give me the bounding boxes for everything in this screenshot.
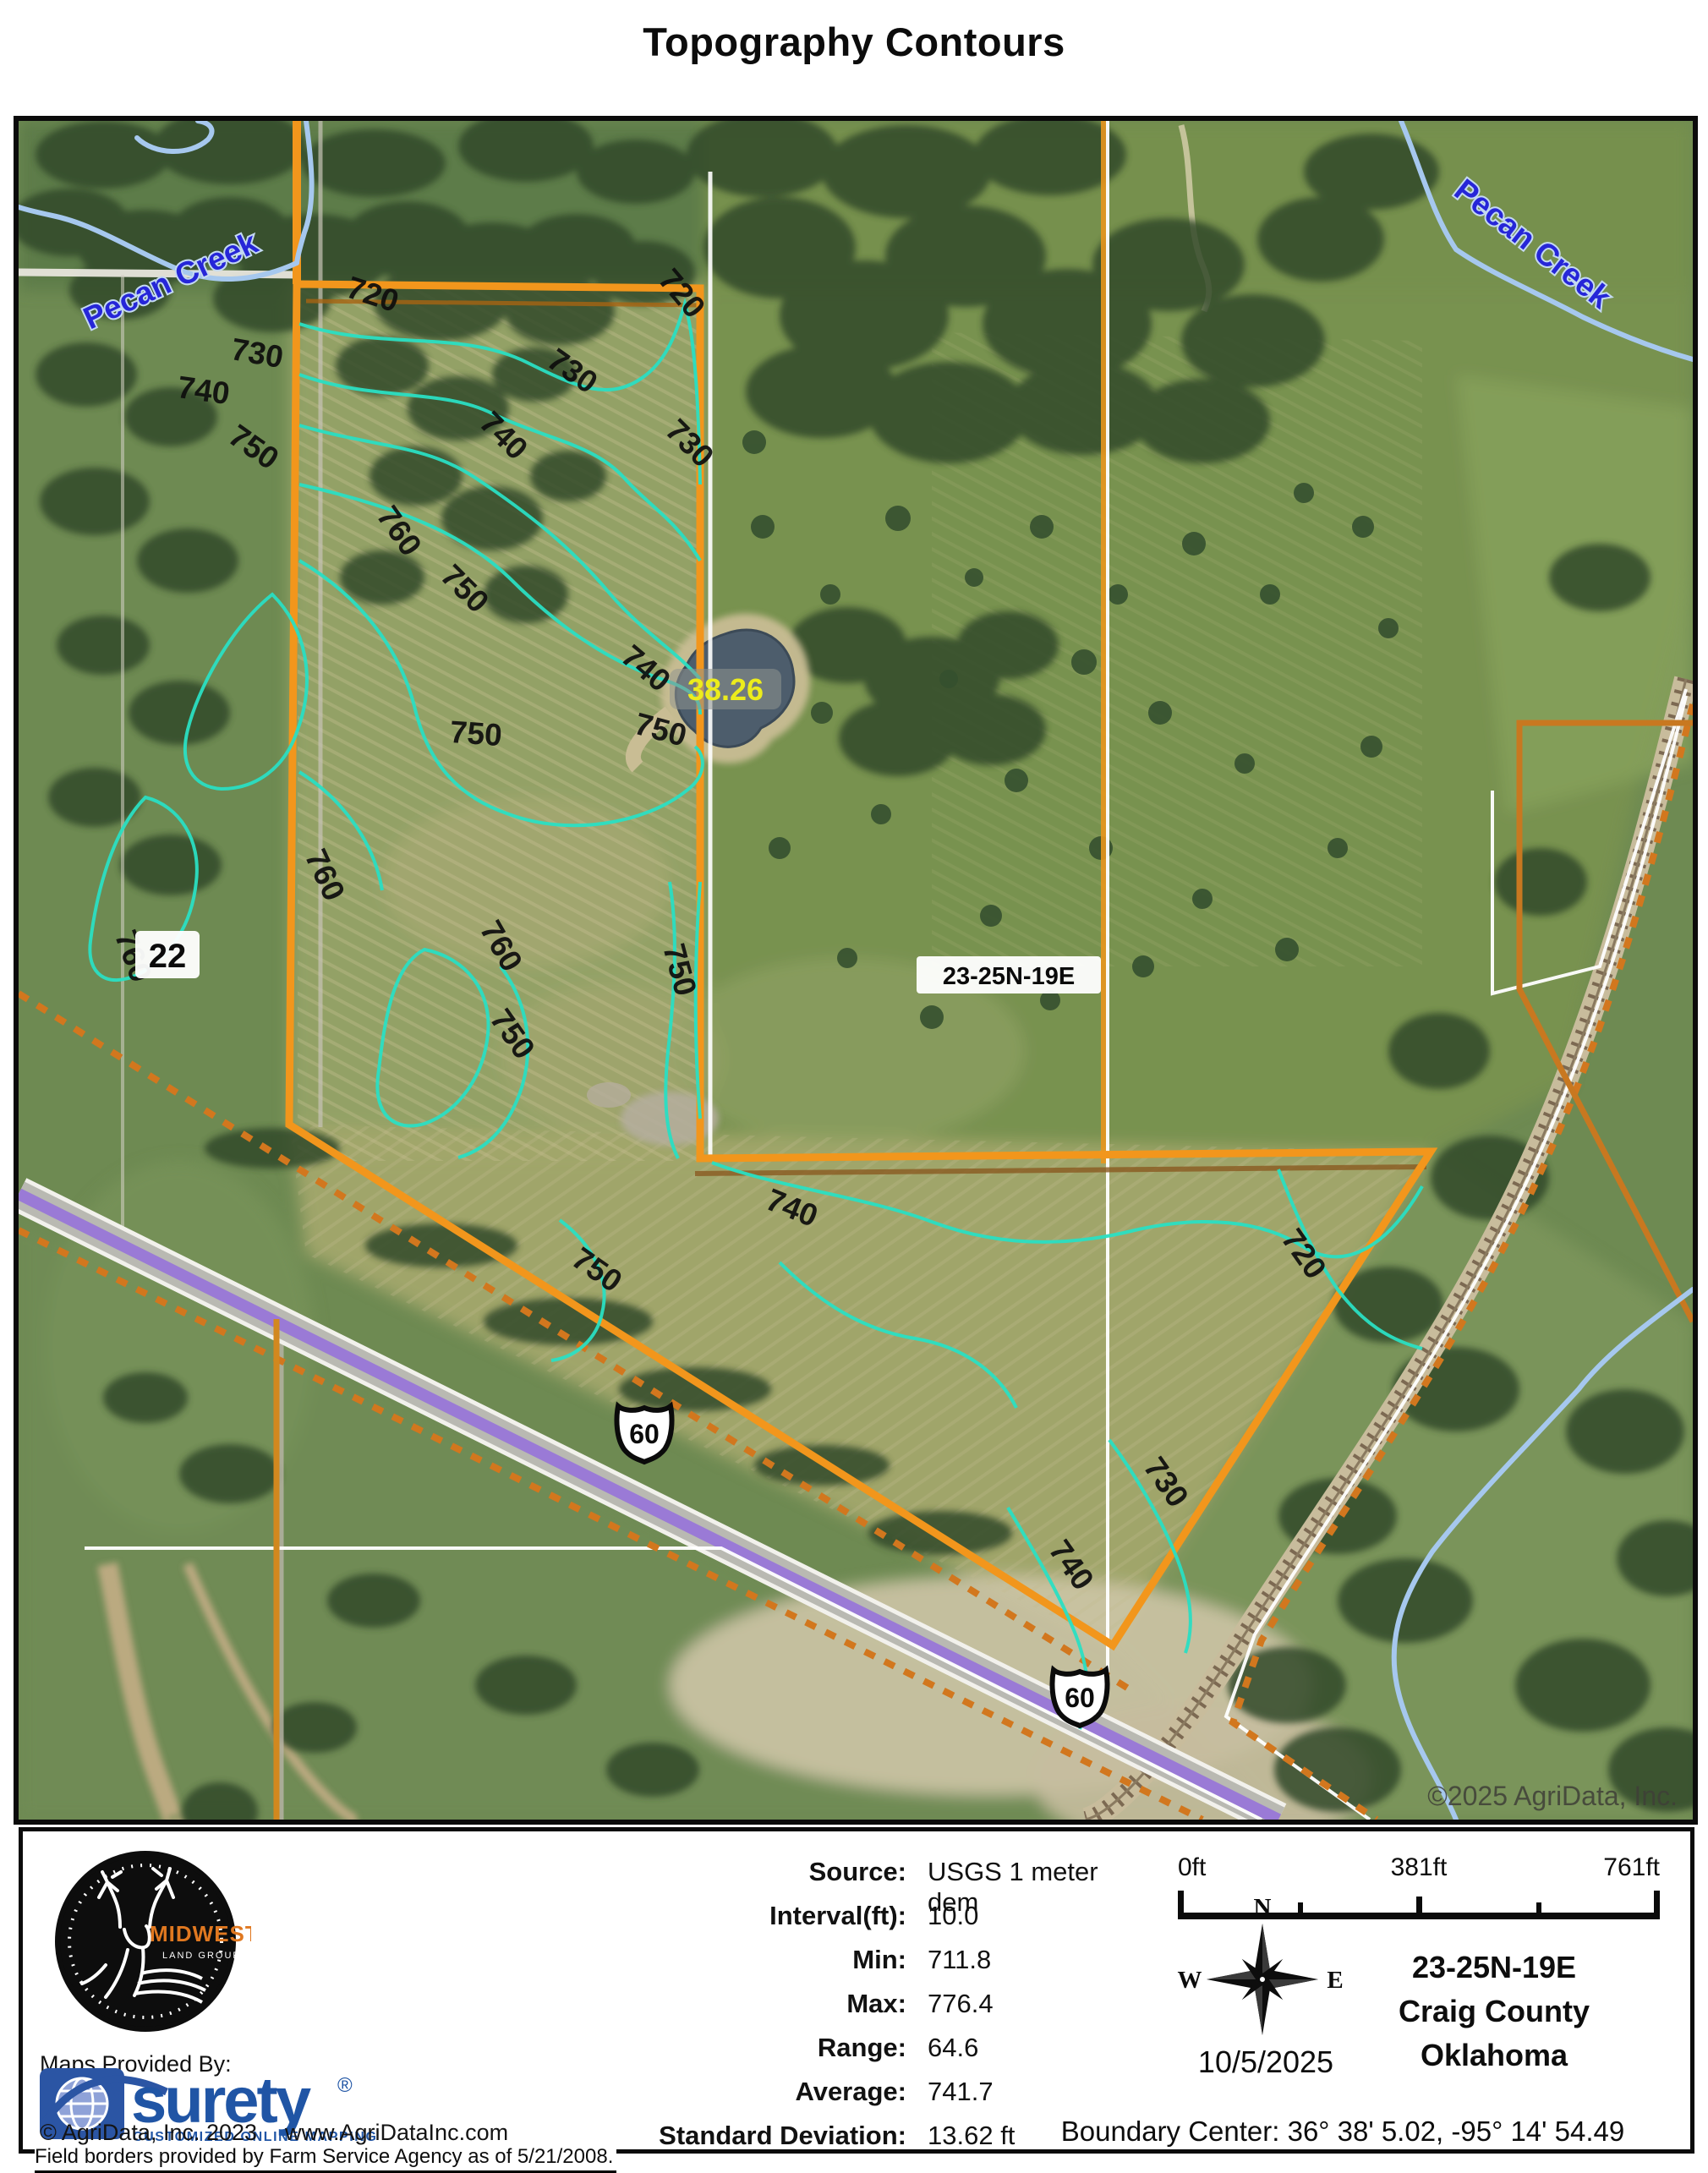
page-title: Topography Contours [0,19,1708,65]
section-number-badge: 22 [135,931,200,978]
stat-value: 10.0 [928,1901,978,1931]
stat-label: Max: [302,1989,906,2019]
logo-sub-text: LAND GROUP [162,1951,241,1961]
aerial-map-image: 720 720 730 730 730 740 740 750 760 750 … [19,121,1693,1820]
compass-n: N [1254,1894,1272,1921]
contour-label: 750 [449,714,503,753]
location-township: 23-25N-19E [1317,1950,1672,1985]
contour-label: 740 [175,369,232,411]
compass-w: W [1178,1967,1202,1994]
map-canvas: 720 720 730 730 730 740 740 750 760 750 … [14,116,1698,1825]
acreage-label: 38.26 [670,669,781,709]
township-text: 23-25N-19E [943,963,1075,990]
us-route-shield-icon: 60 [1052,1670,1107,1726]
compass-s: S [1256,2039,1269,2043]
map-copyright-watermark: ©2025 AgriData, Inc. [1427,1781,1678,1811]
info-panel: MIDWEST LAND GROUP Maps Provided By: sur… [19,1827,1694,2154]
acreage-value: 38.26 [687,672,764,707]
agridata-copyright: © AgriData, Inc. 2023 [40,2120,257,2146]
stat-label: Standard Deviation: [302,2121,906,2151]
stat-label: Source: [302,1857,906,1887]
stat-label: Range: [302,2033,906,2063]
scale-start: 0ft [1178,1853,1207,1881]
us-route-shield-icon: 60 [616,1406,671,1462]
stat-value: 741.7 [928,2077,994,2107]
scale-mid: 381ft [1391,1853,1448,1881]
logo-brand-text: MIDWEST [150,1921,251,1946]
stat-label: Min: [302,1945,906,1975]
township-badge: 23-25N-19E [917,956,1101,993]
stat-label: Average: [302,2077,906,2107]
shield-number: 60 [1065,1683,1095,1713]
stat-label: Interval(ft): [302,1901,906,1931]
location-county: Craig County [1317,1994,1672,2029]
location-state: Oklahoma [1317,2038,1672,2073]
boundary-center-coords: Boundary Center: 36° 38' 5.02, -95° 14' … [995,2116,1690,2148]
shield-number: 60 [629,1419,660,1449]
scale-bar: 0ft 381ft 761ft [1178,1853,1661,1919]
scale-end: 761ft [1603,1853,1660,1881]
section-number: 22 [149,938,187,975]
midwest-land-group-logo: MIDWEST LAND GROUP [40,1838,251,2050]
stat-value: 64.6 [928,2033,978,2063]
